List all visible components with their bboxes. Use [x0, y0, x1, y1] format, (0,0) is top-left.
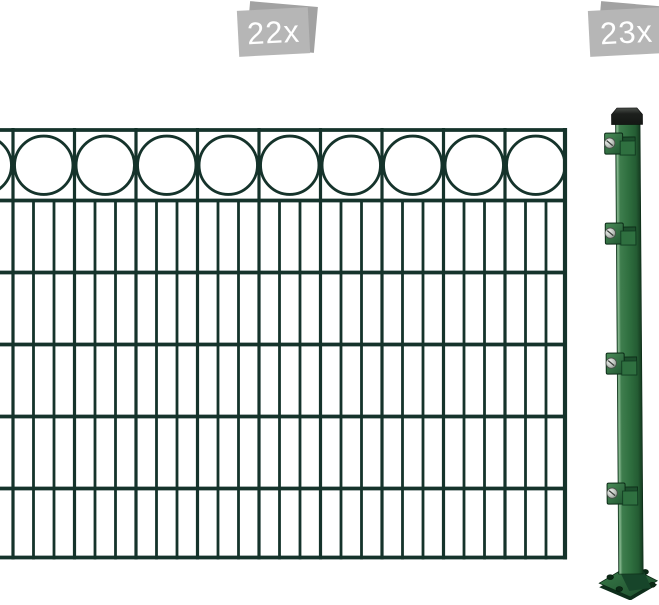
base-plate-hole: [616, 587, 623, 592]
base-plate-hole: [607, 575, 614, 580]
badge-front-layer: 22x: [237, 7, 310, 57]
panel-quantity-badge: 22x: [238, 3, 318, 59]
post-cap: [611, 108, 642, 125]
post-quantity-label: 23x: [599, 15, 654, 49]
post-body: [616, 122, 644, 574]
fence-post: [596, 108, 657, 600]
fence-panel: [0, 128, 567, 560]
badge-front-layer: 23x: [588, 7, 659, 57]
product-image: { "badges": { "panel_quantity_badge": { …: [0, 0, 659, 600]
fence-kit-illustration: [0, 0, 659, 600]
post-quantity-badge: 23x: [589, 3, 659, 59]
panel-quantity-label: 22x: [246, 15, 301, 49]
